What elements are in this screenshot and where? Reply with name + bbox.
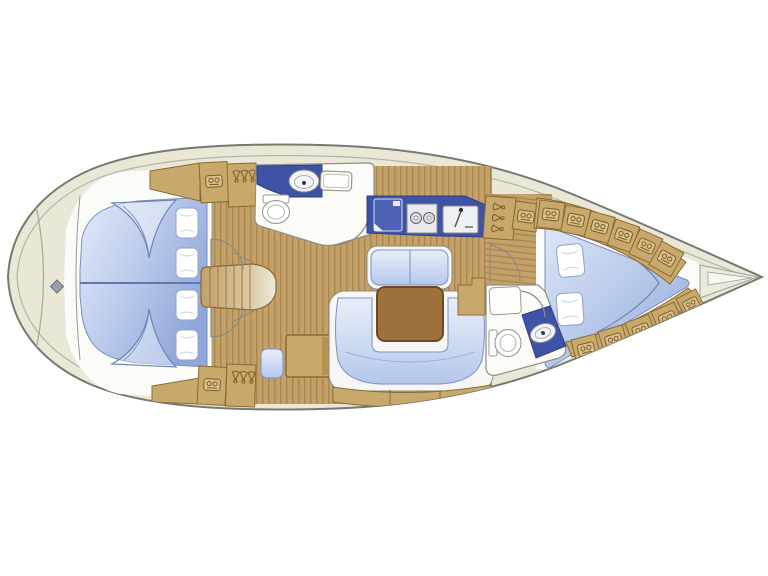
pillow <box>556 243 585 278</box>
vent-icon <box>517 210 535 224</box>
hanging-locker <box>227 163 257 207</box>
bench-settee <box>367 246 452 289</box>
pillow <box>176 248 198 278</box>
vent-locker <box>199 162 229 203</box>
fridge-icon <box>374 199 402 231</box>
toilet-icon <box>263 195 290 224</box>
pillow <box>176 208 198 238</box>
nav-seat <box>261 349 283 378</box>
vent-icon <box>567 213 585 228</box>
vent-locker <box>197 366 227 405</box>
stove-icon <box>407 204 437 233</box>
toilet-icon <box>489 330 521 357</box>
yacht-floor-plan <box>0 0 768 576</box>
faucet-icon <box>302 181 306 185</box>
galley-sink-icon <box>443 206 478 233</box>
floor-plan-page <box>0 0 768 576</box>
hatch-window-icon <box>320 171 352 191</box>
pillow <box>556 292 584 326</box>
hanging-locker-forward <box>483 196 516 240</box>
vent-icon <box>204 378 221 390</box>
pillow <box>176 330 198 360</box>
dining-table <box>377 287 443 341</box>
pillow <box>176 290 198 320</box>
shower-bench <box>489 286 521 315</box>
hanging-locker <box>226 364 256 407</box>
vent-icon <box>205 175 222 187</box>
galley <box>367 196 488 237</box>
aft-cabins <box>64 166 212 400</box>
vent-icon <box>542 208 560 222</box>
